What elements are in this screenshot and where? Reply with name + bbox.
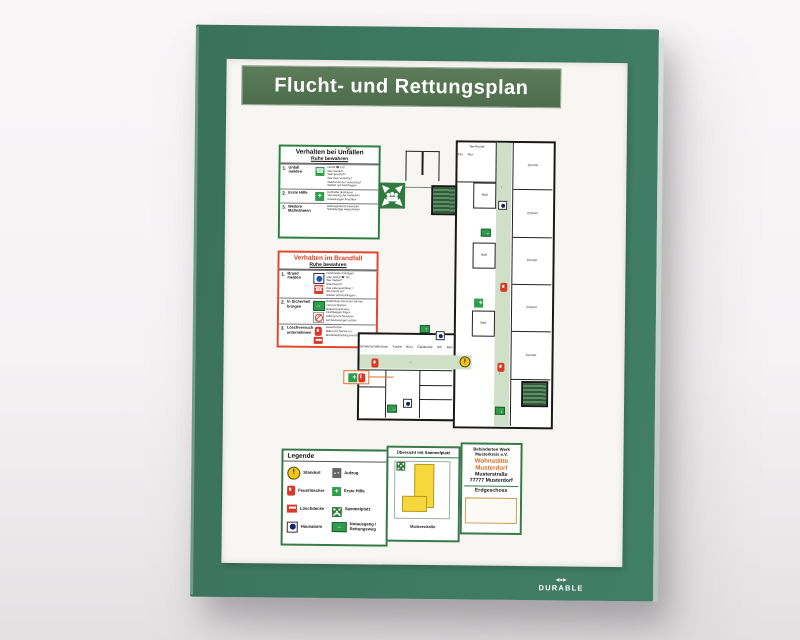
room-label: Bad bbox=[481, 254, 487, 258]
room-label: Zimmer bbox=[528, 164, 539, 168]
room: Bad bbox=[472, 243, 495, 269]
phone-icon: ☎ bbox=[315, 167, 324, 176]
fire-extinguisher-icon bbox=[497, 363, 504, 372]
phone-icon: ☎ bbox=[314, 285, 323, 294]
empty-note-box bbox=[465, 497, 517, 524]
room: Zimmer bbox=[511, 332, 550, 380]
room-label: Tee-Küche bbox=[469, 145, 484, 149]
legend-item: !Standort bbox=[287, 464, 332, 482]
location-icon: ! bbox=[459, 356, 470, 367]
emergency-exit-icon: ↑ bbox=[420, 325, 430, 333]
room: Zimmer bbox=[512, 285, 551, 333]
assembly-point-icon bbox=[379, 183, 405, 209]
plan-title: Flucht- und Rettungsplan bbox=[274, 74, 528, 99]
fire-extinguisher-icon bbox=[287, 486, 295, 496]
room-label: Büro bbox=[406, 345, 413, 349]
room-label: Bad bbox=[481, 322, 487, 326]
legend-item: Feuerlöscher bbox=[287, 482, 332, 500]
fire-extinguisher-icon bbox=[500, 283, 507, 292]
street-label: Musterstraße bbox=[388, 524, 458, 530]
house-alarm-icon bbox=[498, 201, 507, 210]
fire-extinguisher-icon bbox=[315, 327, 322, 336]
room-label: Zimmer bbox=[526, 354, 537, 358]
first-aid-icon: + bbox=[332, 487, 341, 496]
room-label: Bad bbox=[482, 194, 488, 198]
room: Zimmer bbox=[513, 143, 552, 191]
escape-plan-sheet: Flucht- und Rettungsplan Verhalten bei U… bbox=[221, 59, 627, 567]
emergency-exit-icon: ← bbox=[387, 405, 397, 413]
legend-item: Löschdecke bbox=[287, 500, 332, 518]
building-right-wing: Tee-Küche Zimmer Zimmer Zimmer Zimmer Zi… bbox=[453, 140, 556, 429]
fire-extinguisher-icon bbox=[358, 373, 365, 382]
row-label: Unfall melden bbox=[288, 166, 313, 175]
staircase bbox=[431, 185, 457, 215]
room: Zimmer bbox=[513, 190, 552, 238]
route-arrow-icon: → bbox=[407, 359, 412, 365]
room-label: Zimmer bbox=[527, 212, 538, 216]
row-label: In Sicherheit bringen bbox=[287, 300, 312, 309]
row-label: Weitere Maßnahmen bbox=[288, 204, 313, 213]
carport-outline bbox=[405, 151, 439, 181]
emergency-exit-icon: → bbox=[313, 301, 325, 311]
room-label: Gemeinschaftsraum bbox=[360, 344, 389, 348]
floor-plan: Tee-Küche Zimmer Zimmer Zimmer Zimmer Zi… bbox=[343, 136, 571, 438]
room-label: Garderobe bbox=[417, 345, 432, 349]
overview-map bbox=[388, 458, 459, 525]
legend-panel: Legende !Standort Feuerlöscher Löschdeck… bbox=[281, 449, 389, 547]
location-icon: ! bbox=[287, 466, 300, 479]
emergency-exit-icon: ← bbox=[481, 229, 491, 237]
emergency-exit-icon: ↓ bbox=[495, 407, 505, 415]
legend-item: Hausalarm bbox=[287, 518, 332, 536]
legend-item: ▲▼Aufzug bbox=[332, 464, 384, 483]
legend-item: +Erste Hilfe bbox=[332, 482, 384, 501]
legend-item: →Notausgang / Rettungsweg bbox=[332, 518, 384, 537]
row-label: Löschversuch unternehmen bbox=[287, 326, 312, 335]
durable-logo: DURABLE bbox=[535, 577, 587, 593]
room: Zimmer bbox=[512, 238, 551, 286]
row-label: Erste Hilfe bbox=[288, 190, 313, 195]
room-label: Zimmer bbox=[526, 306, 537, 310]
house-alarm-icon bbox=[287, 521, 298, 532]
room-label: Flur bbox=[346, 146, 352, 150]
route-arrow-icon: ↑ bbox=[500, 185, 503, 191]
fire-blanket-icon bbox=[287, 505, 297, 513]
overview-panel: Übersicht mit Sammelplatz Musterstraße bbox=[386, 446, 461, 543]
durable-wordmark: DURABLE bbox=[535, 583, 587, 593]
floor-label: Erdgeschoss bbox=[464, 485, 518, 496]
elevator-icon: ▲▼ bbox=[332, 468, 341, 478]
emergency-exit-icon: → bbox=[332, 522, 347, 532]
room: Bad bbox=[472, 310, 495, 336]
fire-extinguisher-icon bbox=[371, 358, 378, 367]
row-label: Brand melden bbox=[287, 272, 312, 281]
plan-title-banner: Flucht- und Rettungsplan bbox=[241, 65, 561, 108]
durable-frame: Flucht- und Rettungsplan Verhalten bei U… bbox=[190, 25, 659, 602]
first-aid-icon: + bbox=[474, 299, 483, 308]
fire-alarm-button-icon bbox=[313, 273, 324, 284]
legend-grid: !Standort Feuerlöscher Löschdecke Hausal… bbox=[283, 462, 387, 537]
room-label: WC bbox=[437, 345, 442, 349]
fire-blanket-icon bbox=[314, 337, 323, 344]
no-elevator-icon bbox=[313, 312, 324, 323]
house-alarm-icon bbox=[436, 331, 445, 340]
assembly-point-icon bbox=[332, 504, 342, 514]
equipment-callout: + bbox=[343, 370, 369, 384]
house-alarm-icon bbox=[403, 399, 412, 408]
room-label: Küche bbox=[393, 345, 402, 349]
assembly-point-icon bbox=[396, 462, 405, 471]
durable-emblem-icon bbox=[554, 577, 568, 582]
product-photo-background: Flucht- und Rettungsplan Verhalten bei U… bbox=[0, 0, 800, 640]
building-footprint bbox=[402, 496, 427, 512]
room: Bad bbox=[473, 183, 496, 209]
first-aid-icon: + bbox=[315, 192, 324, 201]
callout-link-line bbox=[369, 376, 393, 377]
staircase bbox=[521, 381, 548, 407]
legend-item: Sammelplatz bbox=[332, 500, 384, 519]
room: Tee-Küche bbox=[457, 142, 496, 182]
first-aid-icon: + bbox=[348, 373, 357, 382]
room-label: Zimmer bbox=[527, 259, 538, 263]
address-panel: Behinderten Werk Musterkreis e.V. Wohnst… bbox=[460, 442, 523, 535]
zip-city: 77777 Musterdorf bbox=[464, 478, 518, 485]
